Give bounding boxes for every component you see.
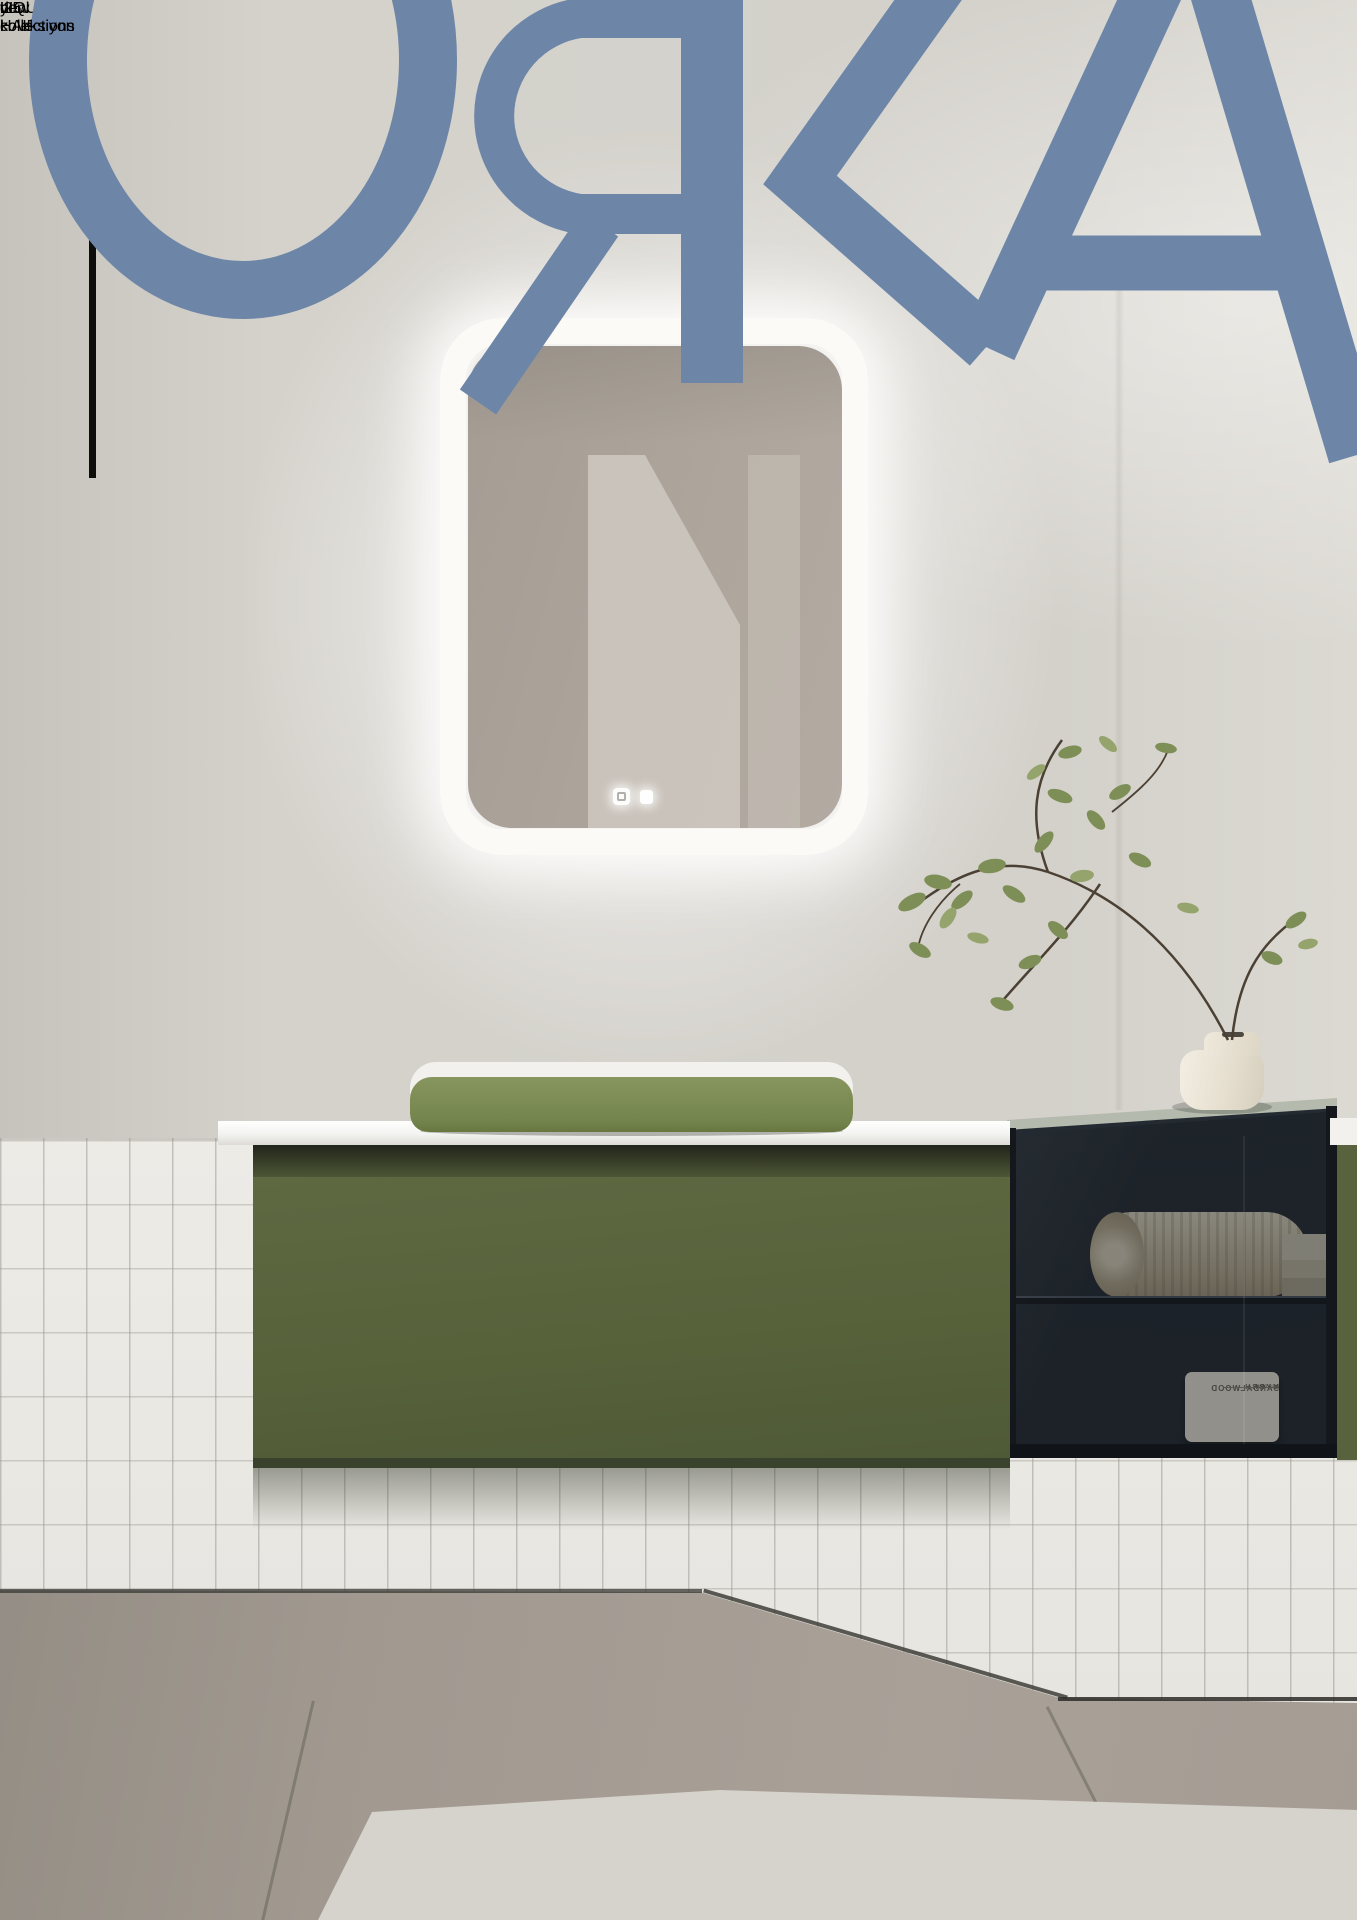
year-mark: ’25 (0, 0, 21, 18)
brand-logo (0, 0, 1357, 1920)
catalog-cover: SANDALWOOD MYRRH aurora (0, 0, 1357, 1920)
